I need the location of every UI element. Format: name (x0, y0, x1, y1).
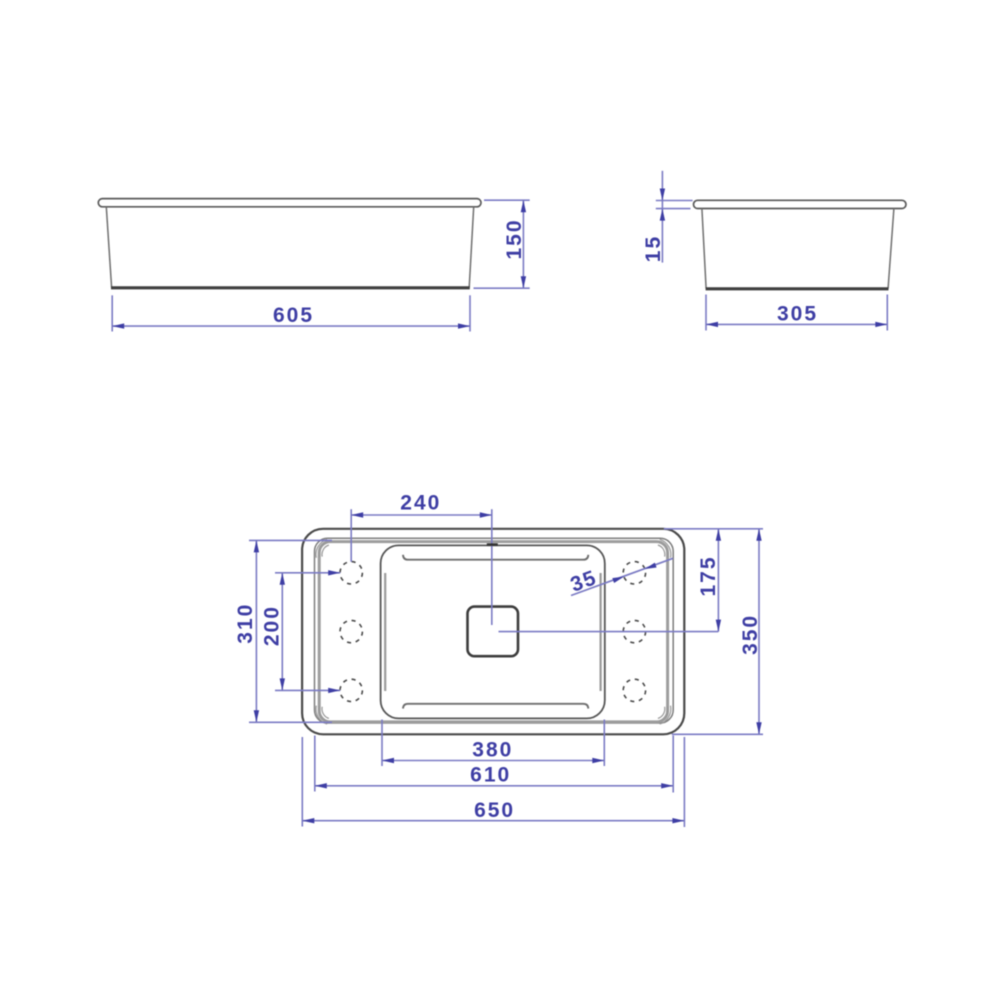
svg-text:150: 150 (503, 218, 526, 259)
svg-text:380: 380 (472, 739, 513, 762)
svg-text:200: 200 (261, 605, 284, 646)
svg-text:650: 650 (474, 799, 515, 822)
svg-text:305: 305 (777, 303, 818, 326)
svg-text:610: 610 (470, 764, 511, 787)
svg-text:310: 310 (234, 603, 257, 644)
svg-text:605: 605 (273, 304, 314, 327)
svg-text:175: 175 (697, 555, 720, 596)
svg-text:350: 350 (739, 614, 762, 655)
svg-text:240: 240 (400, 492, 441, 515)
svg-text:15: 15 (642, 235, 665, 262)
